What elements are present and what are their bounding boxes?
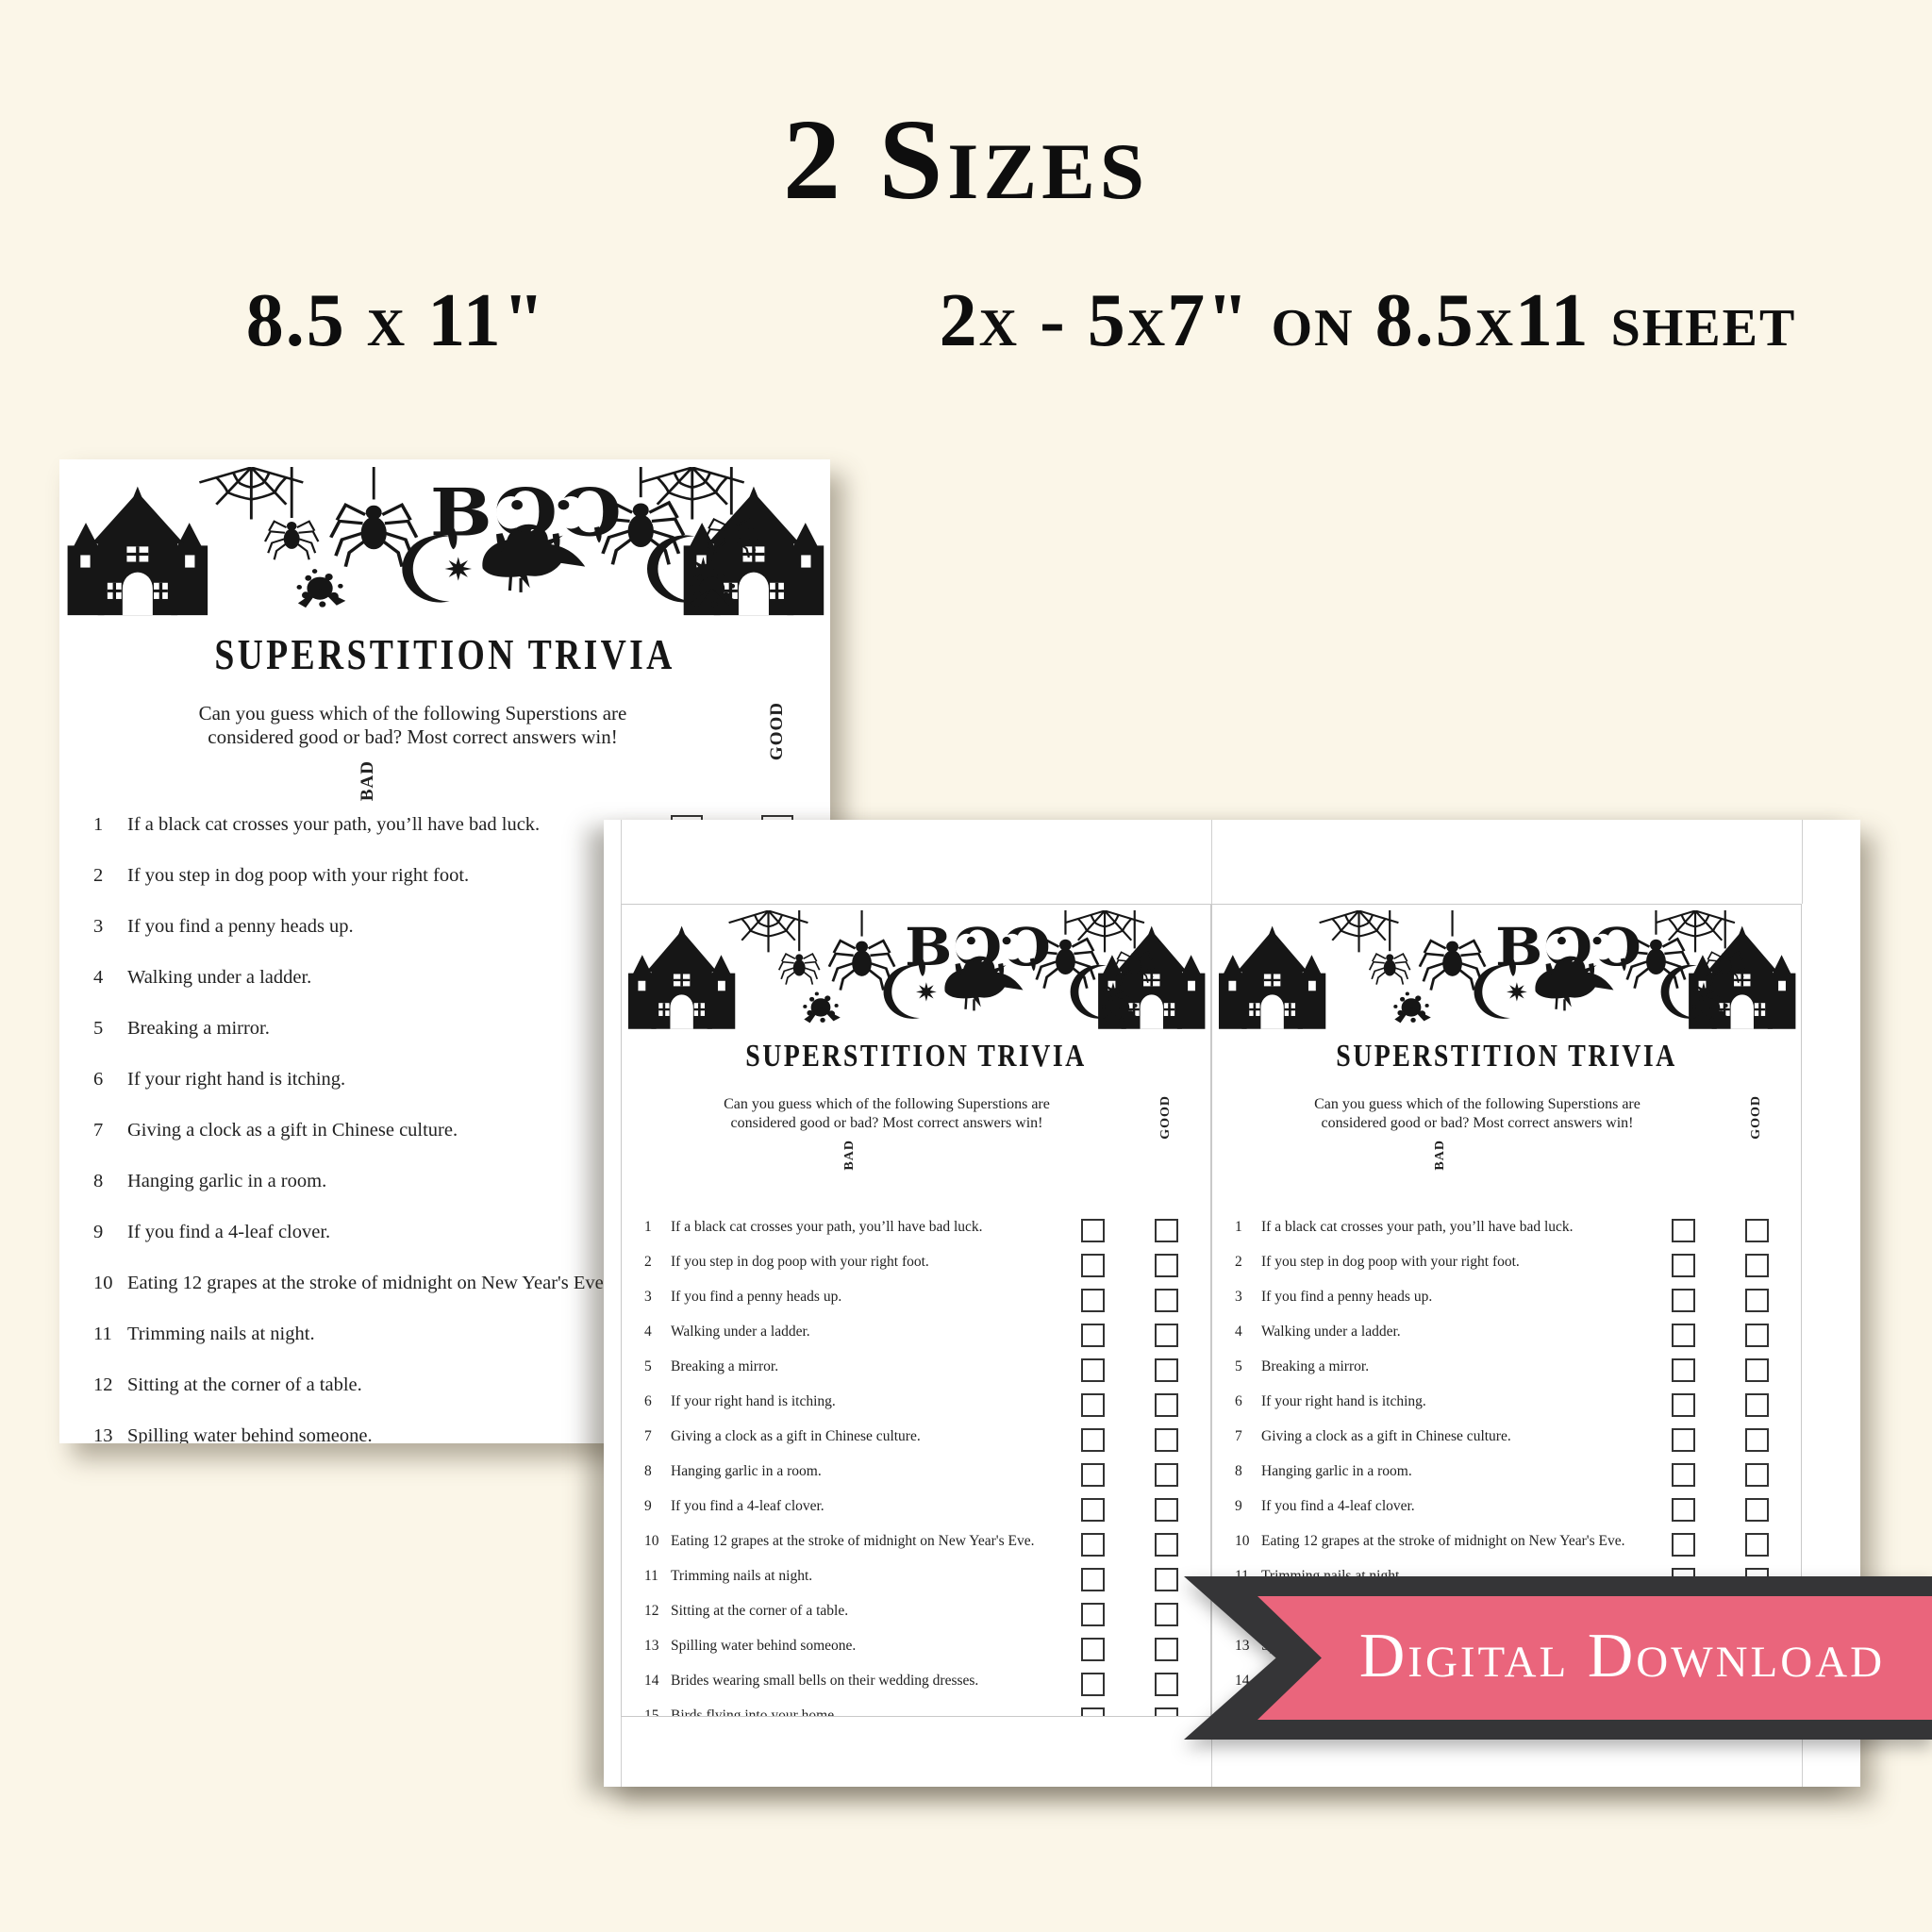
good-checkbox [1672, 1393, 1695, 1417]
good-checkbox [1081, 1289, 1105, 1312]
bad-column-header: BAD [1433, 1140, 1448, 1171]
good-checkbox [1081, 1358, 1105, 1382]
trivia-item-row: 6 If your right hand is itching. [644, 1393, 1203, 1417]
item-text: If you find a 4-leaf clover. [1261, 1498, 1646, 1515]
item-number: 11 [93, 1324, 127, 1346]
item-number: 5 [93, 1018, 127, 1041]
trivia-item-row: 5 Breaking a mirror. [644, 1358, 1203, 1382]
trivia-item-row: 7 Giving a clock as a gift in Chinese cu… [1235, 1428, 1793, 1452]
trivia-item-row: 5 Breaking a mirror. [1235, 1358, 1793, 1382]
item-number: 14 [644, 1673, 671, 1690]
good-checkbox [1081, 1463, 1105, 1487]
item-number: 1 [644, 1219, 671, 1236]
size-label-5x7: 2x - 5x7" on 8.5x11 sheet [868, 278, 1868, 364]
bad-checkbox [1155, 1289, 1178, 1312]
trivia-item-row: 14 Brides wearing small bells on their w… [644, 1673, 1203, 1696]
bad-column-header: BAD [842, 1140, 858, 1171]
trivia-item-row: 4 Walking under a ladder. [644, 1324, 1203, 1347]
trivia-item-row: 2 If you step in dog poop with your righ… [1235, 1254, 1793, 1277]
bad-column-header: BAD [358, 760, 378, 801]
item-number: 2 [1235, 1254, 1261, 1271]
bad-checkbox [1745, 1428, 1769, 1452]
item-number: 10 [93, 1273, 127, 1295]
product-listing-image: 2 Sizes 8.5 x 11" 2x - 5x7" on 8.5x11 sh… [0, 0, 1932, 1932]
item-text: Spilling water behind someone. [127, 1425, 641, 1443]
good-checkbox [1672, 1254, 1695, 1277]
trivia-item-row: 11 Trimming nails at night. [644, 1568, 1203, 1591]
good-checkbox [1081, 1533, 1105, 1557]
item-number: 4 [644, 1324, 671, 1341]
item-text: Breaking a mirror. [671, 1358, 1056, 1375]
item-text: If you find a penny heads up. [1261, 1289, 1646, 1306]
item-text: Walking under a ladder. [671, 1324, 1056, 1341]
item-text: Eating 12 grapes at the stroke of midnig… [671, 1533, 1056, 1550]
size-label-8x11: 8.5 x 11" [113, 278, 679, 364]
good-column-header: GOOD [767, 702, 788, 760]
item-text: Birds flying into your home [671, 1707, 1056, 1716]
item-text: Sitting at the corner of a table. [127, 1374, 641, 1397]
item-number: 13 [644, 1638, 671, 1655]
item-number: 7 [644, 1428, 671, 1445]
good-checkbox [1081, 1324, 1105, 1347]
card-title: SUPERSTITION TRIVIA [1265, 1039, 1748, 1074]
item-text: If you find a 4-leaf clover. [127, 1222, 641, 1244]
cut-mark [621, 1717, 622, 1787]
item-number: 10 [1235, 1533, 1261, 1550]
good-checkbox [1672, 1219, 1695, 1242]
item-number: 9 [644, 1498, 671, 1515]
good-checkbox [1081, 1428, 1105, 1452]
item-number: 6 [93, 1069, 127, 1091]
card-title: SUPERSTITION TRIVIA [129, 629, 761, 679]
item-number: 1 [93, 814, 127, 837]
bad-checkbox [1155, 1533, 1178, 1557]
item-number: 5 [644, 1358, 671, 1375]
good-checkbox [1081, 1254, 1105, 1277]
trivia-item-row: 8 Hanging garlic in a room. [1235, 1463, 1793, 1487]
bad-checkbox [1745, 1324, 1769, 1347]
good-checkbox [1081, 1568, 1105, 1591]
good-column-header: GOOD [1158, 1095, 1174, 1140]
trivia-item-row: 8 Hanging garlic in a room. [644, 1463, 1203, 1487]
digital-download-ribbon: Digital Download [1184, 1576, 1932, 1740]
trivia-item-row: 3 If you find a penny heads up. [1235, 1289, 1793, 1312]
item-text: Eating 12 grapes at the stroke of midnig… [1261, 1533, 1646, 1550]
trivia-item-row: 6 If your right hand is itching. [1235, 1393, 1793, 1417]
halloween-header-art [1217, 910, 1796, 1039]
item-text: If a black cat crosses your path, you’ll… [127, 814, 641, 837]
instructions-row: Can you guess which of the following Sup… [1212, 1074, 1801, 1170]
bad-checkbox [1745, 1254, 1769, 1277]
item-number: 13 [93, 1425, 127, 1443]
item-text: Hanging garlic in a room. [127, 1171, 641, 1193]
good-checkbox [1672, 1289, 1695, 1312]
bad-checkbox [1155, 1603, 1178, 1626]
item-text: If your right hand is itching. [671, 1393, 1056, 1410]
card-instructions: Can you guess which of the following Sup… [192, 702, 635, 749]
item-text: If a black cat crosses your path, you’ll… [671, 1219, 1056, 1236]
item-text: Trimming nails at night. [671, 1568, 1056, 1585]
ribbon-label: Digital Download [1325, 1576, 1919, 1736]
item-text: Trimming nails at night. [127, 1324, 641, 1346]
item-text: Brides wearing small bells on their wedd… [671, 1673, 1056, 1690]
item-text: Hanging garlic in a room. [671, 1463, 1056, 1480]
bad-checkbox [1745, 1498, 1769, 1522]
page-title: 2 Sizes [0, 94, 1932, 226]
bad-checkbox [1155, 1673, 1178, 1696]
item-number: 3 [1235, 1289, 1261, 1306]
item-number: 6 [1235, 1393, 1261, 1410]
trivia-card-5x7-left: SUPERSTITION TRIVIA Can you guess which … [621, 904, 1211, 1717]
good-checkbox [1081, 1498, 1105, 1522]
instructions-row: Can you guess which of the following Sup… [59, 679, 830, 801]
bad-checkbox [1155, 1358, 1178, 1382]
good-checkbox [1081, 1393, 1105, 1417]
item-text: If your right hand is itching. [1261, 1393, 1646, 1410]
item-text: Breaking a mirror. [1261, 1358, 1646, 1375]
item-text: Walking under a ladder. [127, 967, 641, 990]
cut-mark [1802, 820, 1803, 904]
item-number: 9 [1235, 1498, 1261, 1515]
item-text: Walking under a ladder. [1261, 1324, 1646, 1341]
good-checkbox [1672, 1533, 1695, 1557]
trivia-items: 1 If a black cat crosses your path, you’… [622, 1170, 1210, 1716]
good-checkbox [1672, 1358, 1695, 1382]
good-checkbox [1081, 1603, 1105, 1626]
bad-checkbox [1745, 1463, 1769, 1487]
card-instructions: Can you guess which of the following Sup… [1311, 1095, 1643, 1132]
bad-checkbox [1745, 1393, 1769, 1417]
item-number: 4 [93, 967, 127, 990]
trivia-item-row: 7 Giving a clock as a gift in Chinese cu… [644, 1428, 1203, 1452]
item-text: If you find a penny heads up. [671, 1289, 1056, 1306]
item-number: 12 [93, 1374, 127, 1397]
trivia-item-row: 10 Eating 12 grapes at the stroke of mid… [1235, 1533, 1793, 1557]
item-number: 2 [93, 865, 127, 888]
good-column-header: GOOD [1749, 1095, 1764, 1140]
item-text: Hanging garlic in a room. [1261, 1463, 1646, 1480]
item-number: 3 [644, 1289, 671, 1306]
item-text: Giving a clock as a gift in Chinese cult… [127, 1120, 641, 1142]
item-text: If you find a 4-leaf clover. [671, 1498, 1056, 1515]
bad-checkbox [1155, 1568, 1178, 1591]
item-number: 12 [644, 1603, 671, 1620]
good-checkbox [1672, 1498, 1695, 1522]
good-checkbox [1081, 1219, 1105, 1242]
item-number: 8 [93, 1171, 127, 1193]
item-text: If you find a penny heads up. [127, 916, 641, 939]
trivia-item-row: 10 Eating 12 grapes at the stroke of mid… [644, 1533, 1203, 1557]
trivia-item-row: 4 Walking under a ladder. [1235, 1324, 1793, 1347]
bad-checkbox [1745, 1289, 1769, 1312]
trivia-item-row: 9 If you find a 4-leaf clover. [1235, 1498, 1793, 1522]
good-checkbox [1672, 1428, 1695, 1452]
item-number: 1 [1235, 1219, 1261, 1236]
good-checkbox [1672, 1463, 1695, 1487]
bad-checkbox [1745, 1533, 1769, 1557]
item-text: If you step in dog poop with your right … [671, 1254, 1056, 1271]
item-number: 7 [93, 1120, 127, 1142]
item-text: If you step in dog poop with your right … [127, 865, 641, 888]
item-text: If you step in dog poop with your right … [1261, 1254, 1646, 1271]
item-number: 9 [93, 1222, 127, 1244]
trivia-item-row: 2 If you step in dog poop with your righ… [644, 1254, 1203, 1277]
bad-checkbox [1155, 1638, 1178, 1661]
item-number: 15 [644, 1707, 671, 1716]
instructions-row: Can you guess which of the following Sup… [622, 1074, 1210, 1170]
trivia-item-row: 13 Spilling water behind someone. [644, 1638, 1203, 1661]
item-text: If a black cat crosses your path, you’ll… [1261, 1219, 1646, 1236]
bad-checkbox [1155, 1219, 1178, 1242]
card-title: SUPERSTITION TRIVIA [675, 1039, 1158, 1074]
good-checkbox [1081, 1638, 1105, 1661]
bad-checkbox [1155, 1393, 1178, 1417]
trivia-card: SUPERSTITION TRIVIA Can you guess which … [622, 905, 1210, 1716]
item-text: Giving a clock as a gift in Chinese cult… [671, 1428, 1056, 1445]
bad-checkbox [1745, 1358, 1769, 1382]
cut-mark [621, 820, 622, 904]
item-number: 8 [1235, 1463, 1261, 1480]
trivia-item-row: 15 Birds flying into your home [644, 1707, 1203, 1716]
good-checkbox [1672, 1324, 1695, 1347]
bad-checkbox [1745, 1219, 1769, 1242]
trivia-item-row: 1 If a black cat crosses your path, you’… [644, 1219, 1203, 1242]
bad-checkbox [1155, 1254, 1178, 1277]
item-text: Spilling water behind someone. [671, 1638, 1056, 1655]
item-number: 11 [644, 1568, 671, 1585]
halloween-header-art [626, 910, 1206, 1039]
trivia-item-row: 3 If you find a penny heads up. [644, 1289, 1203, 1312]
good-checkbox [1081, 1673, 1105, 1696]
item-number: 2 [644, 1254, 671, 1271]
item-number: 8 [644, 1463, 671, 1480]
bad-checkbox [1155, 1324, 1178, 1347]
item-number: 3 [93, 916, 127, 939]
bad-checkbox [1155, 1707, 1178, 1716]
bad-checkbox [1155, 1428, 1178, 1452]
item-text: If your right hand is itching. [127, 1069, 641, 1091]
bad-checkbox [1155, 1498, 1178, 1522]
item-text: Breaking a mirror. [127, 1018, 641, 1041]
item-text: Giving a clock as a gift in Chinese cult… [1261, 1428, 1646, 1445]
trivia-item-row: 1 If a black cat crosses your path, you’… [1235, 1219, 1793, 1242]
item-number: 6 [644, 1393, 671, 1410]
item-number: 5 [1235, 1358, 1261, 1375]
halloween-header-art [65, 467, 824, 627]
card-instructions: Can you guess which of the following Sup… [721, 1095, 1053, 1132]
item-number: 4 [1235, 1324, 1261, 1341]
good-checkbox [1081, 1707, 1105, 1716]
item-number: 10 [644, 1533, 671, 1550]
trivia-item-row: 9 If you find a 4-leaf clover. [644, 1498, 1203, 1522]
item-number: 7 [1235, 1428, 1261, 1445]
cut-mark [1211, 820, 1212, 904]
bad-checkbox [1155, 1463, 1178, 1487]
item-text: Sitting at the corner of a table. [671, 1603, 1056, 1620]
trivia-item-row: 12 Sitting at the corner of a table. [644, 1603, 1203, 1626]
item-text: Eating 12 grapes at the stroke of midnig… [127, 1273, 641, 1295]
